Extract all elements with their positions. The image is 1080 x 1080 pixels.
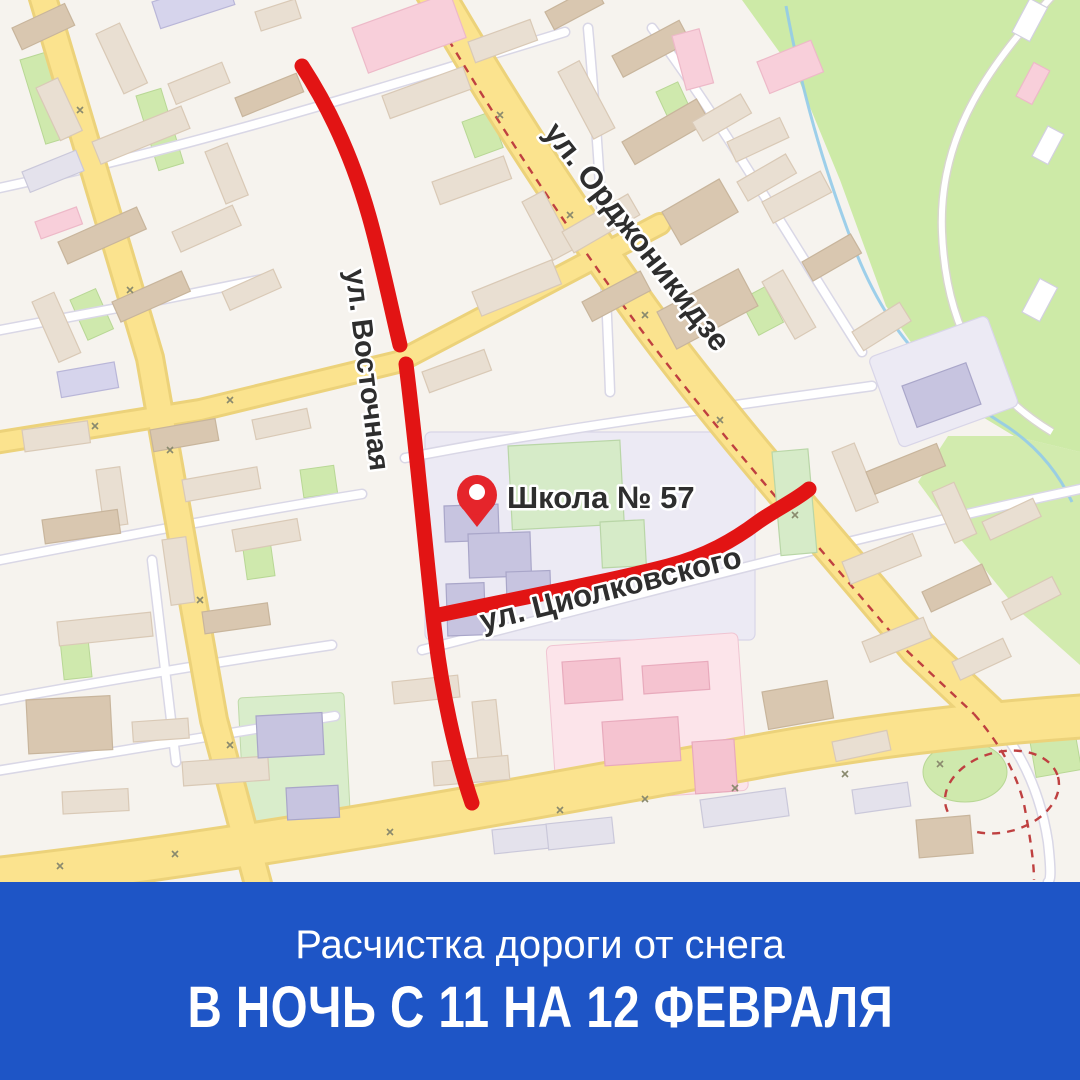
snow-clearing-post: ул. Орджоникидзе ул. Восточная ул. Циолк…	[0, 0, 1080, 1080]
info-banner: Расчистка дороги от снега В НОЧЬ С 11 НА…	[0, 882, 1080, 1080]
banner-title: В НОЧЬ С 11 НА 12 ФЕВРАЛЯ	[187, 979, 893, 1037]
banner-subtitle: Расчистка дороги от снега	[295, 925, 785, 965]
map-container: ул. Орджоникидзе ул. Восточная ул. Циолк…	[0, 0, 1080, 882]
map-canvas: ул. Орджоникидзе ул. Восточная ул. Циолк…	[0, 0, 1080, 882]
school-label: Школа № 57	[507, 480, 695, 515]
